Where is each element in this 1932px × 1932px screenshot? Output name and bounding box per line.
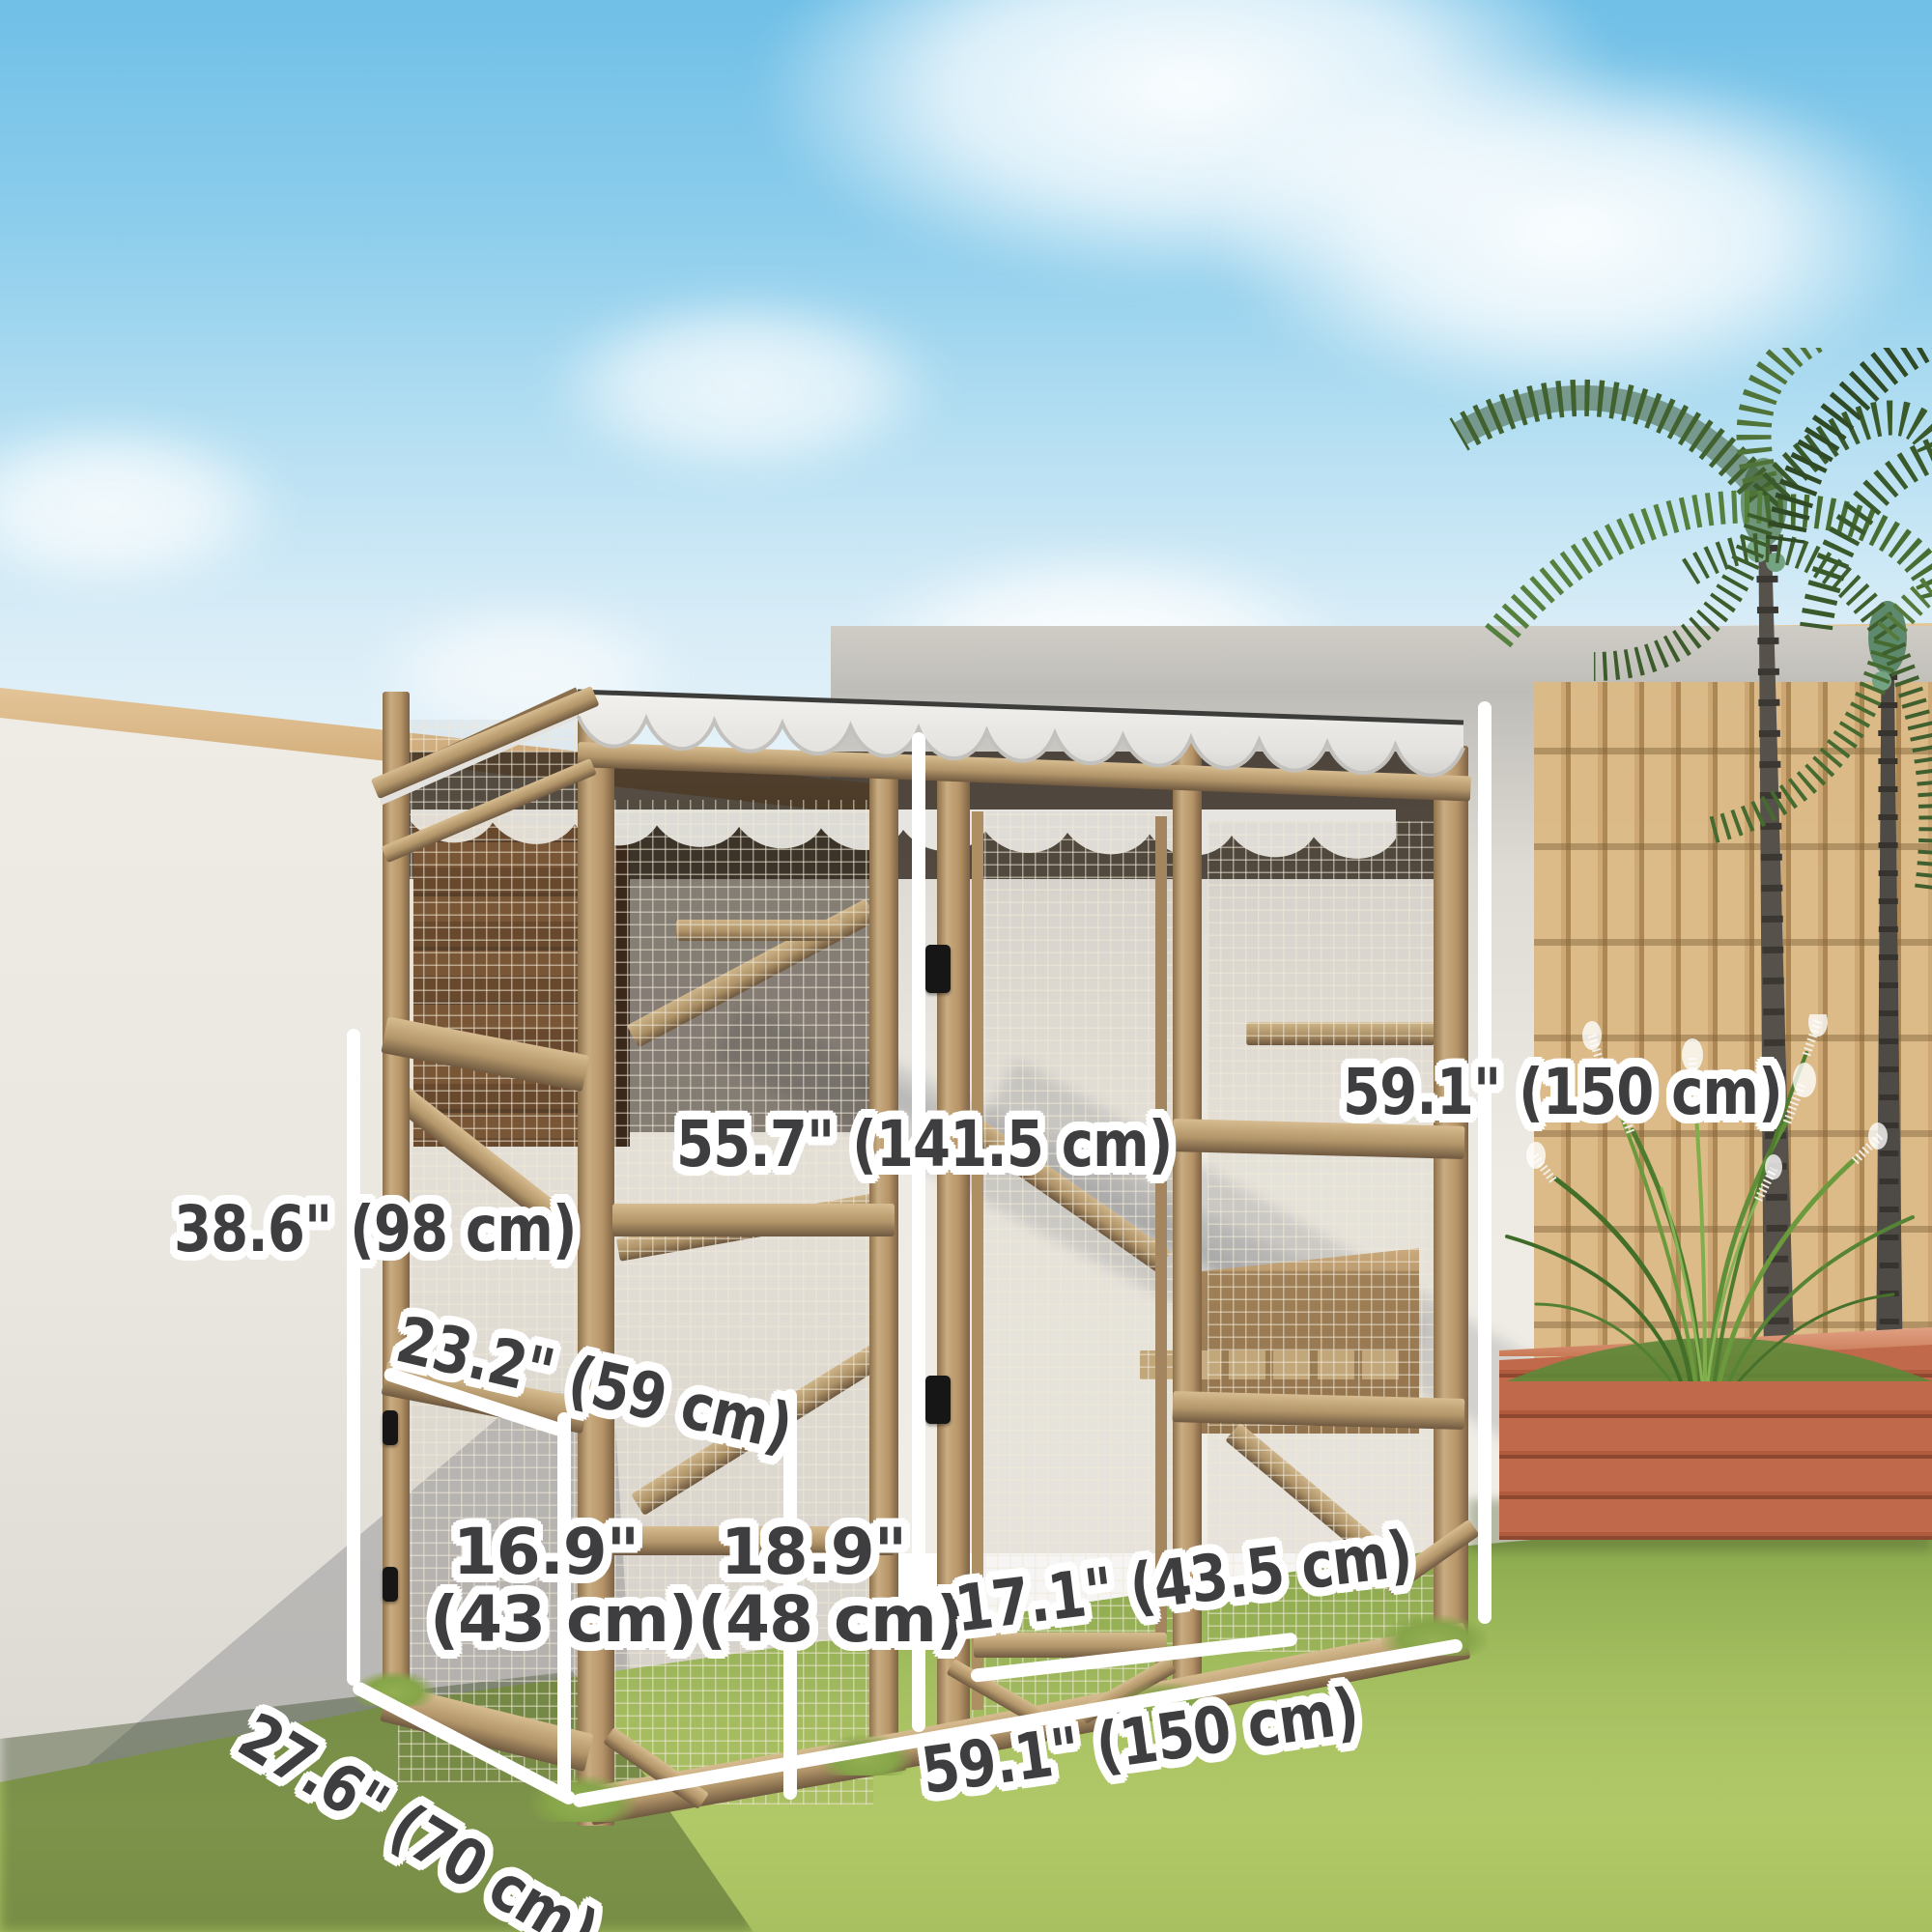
- wood-post: [1434, 746, 1468, 1644]
- backyard-catio-dimension-photo: 38.6" (98 cm) 55.7" (141.5 cm) 59.1" (15…: [0, 0, 1932, 1932]
- roof-canopy: [578, 692, 1463, 776]
- dimension-label-height-inner: 55.7" (141.5 cm): [676, 1111, 1173, 1179]
- dimension-line-height-total: [1478, 701, 1492, 1624]
- door-hinge: [925, 1376, 951, 1424]
- door-hinge: [383, 1567, 398, 1602]
- wood-post: [578, 701, 614, 1826]
- palm-fronds: [1459, 348, 1932, 889]
- door-hinge: [383, 1410, 398, 1445]
- dimension-label-left-door-line1: 16.9": [430, 1519, 662, 1586]
- wood-rail: [612, 1204, 895, 1236]
- dimension-label-height-total: 59.1" (150 cm): [1343, 1059, 1782, 1126]
- dimension-label-height-left: 38.6" (98 cm): [174, 1196, 577, 1264]
- dimension-label-center-panel-line1: 18.9": [697, 1519, 929, 1586]
- cloud: [541, 290, 947, 483]
- dimension-line-height-left: [347, 1029, 360, 1686]
- dimension-label-center-panel-line2: (48 cm): [697, 1586, 929, 1654]
- door-hinge: [925, 945, 951, 993]
- dimension-label-left-door-line2: (43 cm): [430, 1586, 662, 1654]
